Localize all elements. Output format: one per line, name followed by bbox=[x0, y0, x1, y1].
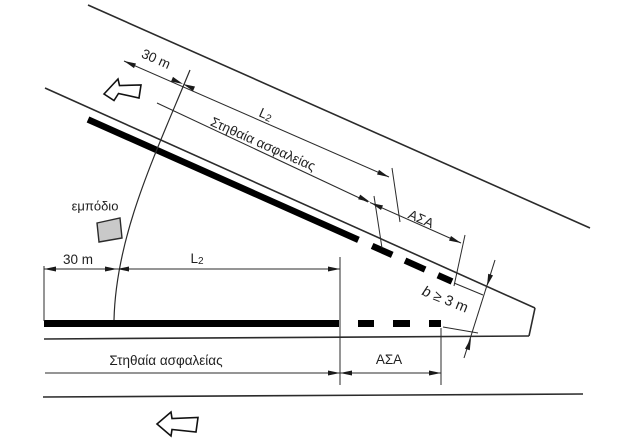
ramp-dimensions bbox=[124, 61, 465, 286]
gore-width-constraint: ≥ 3 m bbox=[431, 288, 471, 316]
main-direction-arrow-icon bbox=[157, 412, 198, 436]
arrowhead bbox=[377, 170, 389, 177]
ramp-upper-edge-line bbox=[88, 5, 590, 228]
arrowhead bbox=[105, 267, 117, 272]
arrowhead bbox=[328, 371, 340, 376]
arrowhead bbox=[340, 371, 352, 376]
arrowhead bbox=[371, 203, 383, 210]
gore-width-label: b≥ 3 m bbox=[420, 284, 471, 317]
obstacle-label: εμπόδιο bbox=[72, 199, 119, 214]
arrowhead bbox=[429, 371, 441, 376]
ramp-terminal-label: ΑΣΑ bbox=[406, 207, 436, 231]
ramp-barrier-end-extension-line bbox=[454, 283, 483, 295]
arrowhead bbox=[44, 267, 56, 272]
arrowhead bbox=[171, 77, 183, 84]
main-guardrail-label: Στηθαία ασφαλείας bbox=[109, 353, 223, 368]
main-terminal-label: ΑΣΑ bbox=[376, 352, 402, 367]
arrowhead bbox=[465, 338, 471, 350]
obstacle-clearance-arc bbox=[114, 70, 190, 320]
arrowhead bbox=[358, 195, 370, 202]
ramp-length-label: L2 bbox=[257, 104, 276, 124]
arrowhead bbox=[328, 267, 340, 272]
arrowhead bbox=[449, 236, 461, 243]
road-edges bbox=[43, 5, 590, 397]
road-gore-diagram: 30 m L2 Στηθαία ασφαλείας ΑΣΑ εμπόδιο b≥… bbox=[0, 0, 629, 446]
main-length-subscript: 2 bbox=[198, 256, 204, 267]
gore-nose-end-line bbox=[529, 308, 535, 336]
ramp-guardrail-label: Στηθαία ασφαλείας bbox=[208, 114, 318, 174]
ramp-direction-arrow-icon bbox=[104, 79, 141, 101]
arrowhead bbox=[124, 61, 136, 68]
ramp-setback-label: 30 m bbox=[139, 46, 173, 72]
arrowhead bbox=[487, 274, 493, 286]
ramp-30m-l2-dimension-line bbox=[124, 61, 389, 177]
main-setback-label: 30 m bbox=[63, 252, 93, 267]
main-road-upper-edge-line bbox=[44, 336, 529, 339]
obstacle-box bbox=[97, 218, 122, 242]
diagram-svg: 30 m L2 Στηθαία ασφαλείας ΑΣΑ εμπόδιο b≥… bbox=[0, 0, 629, 446]
main-length-label: L2 bbox=[190, 251, 204, 267]
gore-width-variable: b bbox=[420, 284, 433, 302]
main-road-lower-edge-line bbox=[43, 394, 583, 397]
ramp-asa-start-witness-line bbox=[374, 196, 382, 248]
